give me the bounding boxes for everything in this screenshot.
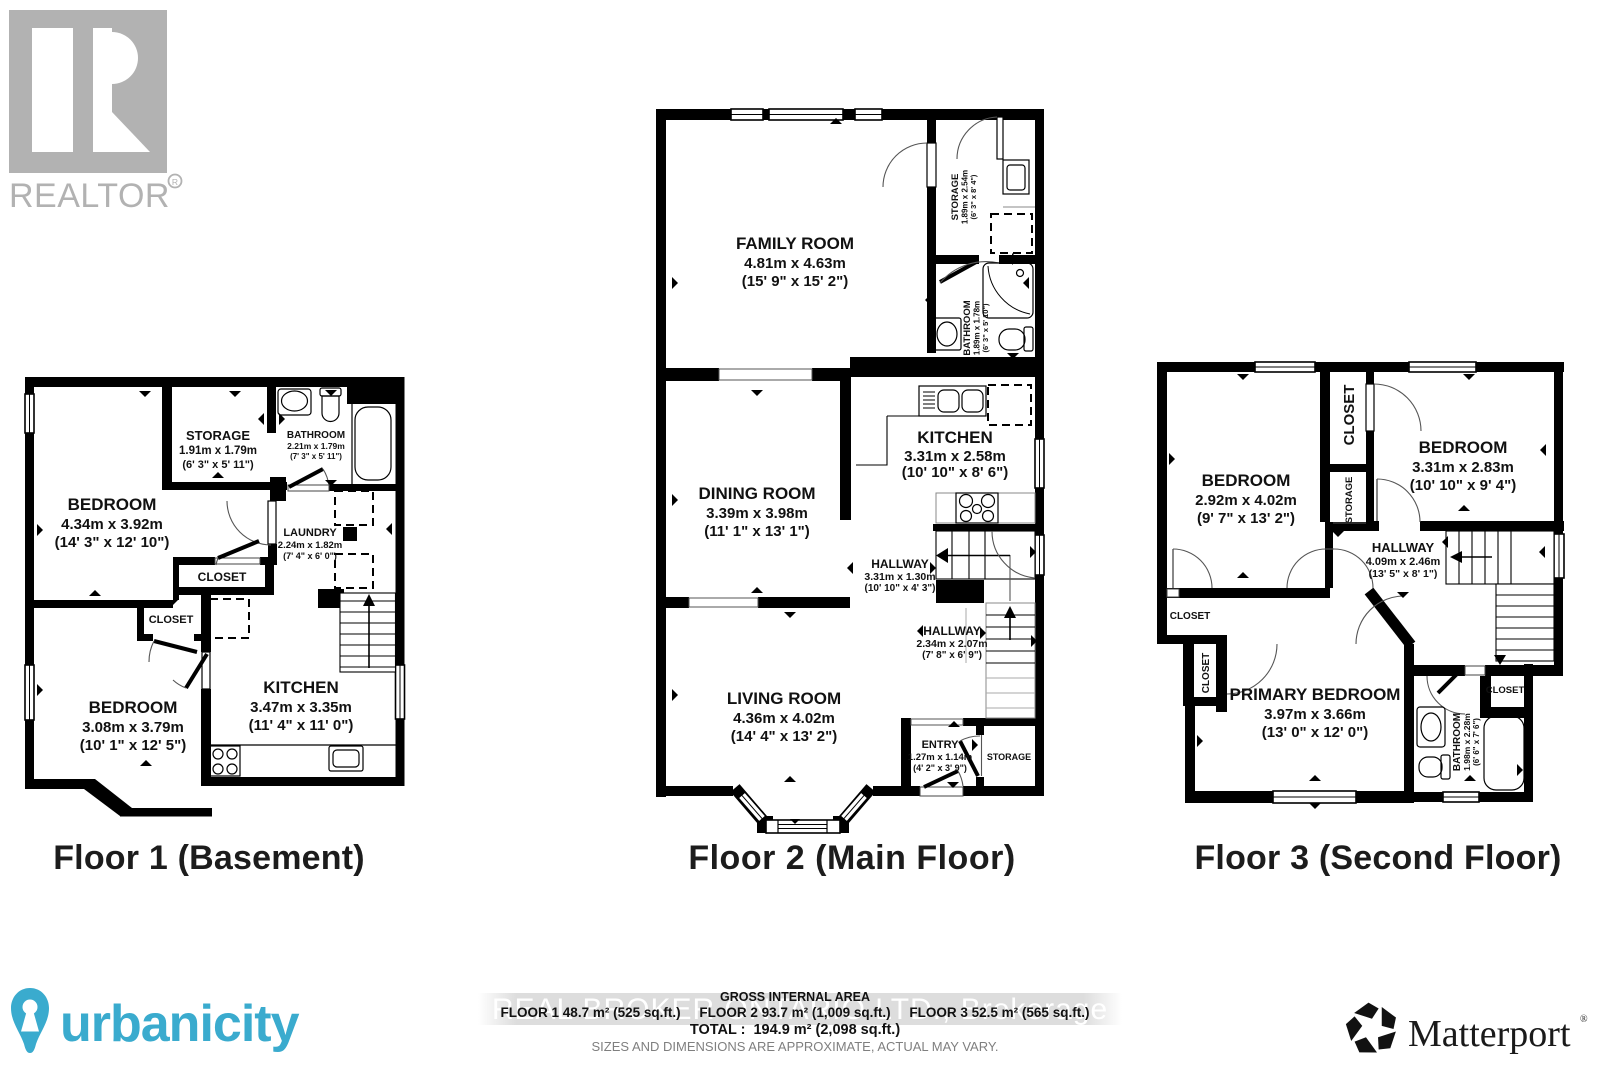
svg-text:CLOSET: CLOSET xyxy=(1170,611,1211,622)
svg-text:®: ® xyxy=(1580,1014,1588,1025)
svg-text:BEDROOM: BEDROOM xyxy=(68,495,157,514)
svg-text:(14' 3" x 12' 10"): (14' 3" x 12' 10") xyxy=(55,534,170,551)
svg-text:BEDROOM: BEDROOM xyxy=(89,698,178,717)
svg-text:STORAGE: STORAGE xyxy=(987,752,1031,762)
svg-text:DINING ROOM: DINING ROOM xyxy=(698,484,815,503)
svg-text:(4' 2" x 3' 9"): (4' 2" x 3' 9") xyxy=(913,763,967,773)
svg-text:(10' 10" x 9' 4"): (10' 10" x 9' 4") xyxy=(1410,477,1516,494)
svg-text:BEDROOM: BEDROOM xyxy=(1202,471,1291,490)
svg-text:(11' 4" x 11' 0"): (11' 4" x 11' 0") xyxy=(249,717,354,734)
svg-text:ENTRY: ENTRY xyxy=(922,739,960,751)
svg-text:1.98m x 2.28m: 1.98m x 2.28m xyxy=(1462,713,1472,771)
svg-text:BATHROOM: BATHROOM xyxy=(962,300,973,355)
svg-text:(6' 3" x 5' 10"): (6' 3" x 5' 10") xyxy=(981,303,990,353)
svg-text:3.08m x 3.79m: 3.08m x 3.79m xyxy=(82,719,184,736)
svg-text:TOTAL : 194.9 m² (2,098 sq.ft: TOTAL : 194.9 m² (2,098 sq.ft.) xyxy=(690,1022,900,1038)
svg-text:LAUNDRY: LAUNDRY xyxy=(283,527,337,539)
svg-text:CLOSET: CLOSET xyxy=(1341,385,1358,446)
svg-text:Floor 2 (Main Floor): Floor 2 (Main Floor) xyxy=(688,839,1015,877)
svg-text:4.81m x 4.63m: 4.81m x 4.63m xyxy=(744,255,846,272)
svg-text:(10' 1" x 12' 5"): (10' 1" x 12' 5") xyxy=(80,737,186,754)
svg-text:(13' 5" x 8' 1"): (13' 5" x 8' 1") xyxy=(1369,568,1438,580)
svg-text:(7' 3" x 5' 11"): (7' 3" x 5' 11") xyxy=(290,452,342,461)
svg-text:HALLWAY: HALLWAY xyxy=(871,557,929,571)
svg-text:REALTOR: REALTOR xyxy=(9,177,170,215)
svg-text:GROSS INTERNAL AREA: GROSS INTERNAL AREA xyxy=(720,990,870,1004)
svg-text:KITCHEN: KITCHEN xyxy=(917,428,993,447)
svg-text:3.31m x 2.83m: 3.31m x 2.83m xyxy=(1412,459,1514,476)
svg-text:FAMILY ROOM: FAMILY ROOM xyxy=(736,234,854,253)
svg-text:STORAGE: STORAGE xyxy=(186,428,250,443)
svg-text:4.34m x 3.92m: 4.34m x 3.92m xyxy=(61,516,163,533)
svg-text:(13' 0" x 12' 0"): (13' 0" x 12' 0") xyxy=(1262,724,1368,741)
svg-text:(6' 3" x 8' 4"): (6' 3" x 8' 4") xyxy=(969,174,978,219)
svg-text:SIZES AND DIMENSIONS ARE APPRO: SIZES AND DIMENSIONS ARE APPROXIMATE, AC… xyxy=(592,1039,999,1054)
svg-text:(6' 6" x 7' 6"): (6' 6" x 7' 6") xyxy=(1472,718,1481,766)
svg-text:(7' 8" x 6' 9"): (7' 8" x 6' 9") xyxy=(922,650,982,661)
svg-text:urbanicity: urbanicity xyxy=(60,995,300,1053)
svg-text:CLOSET: CLOSET xyxy=(1201,653,1212,694)
svg-text:(6' 3" x 5' 11"): (6' 3" x 5' 11") xyxy=(182,459,254,471)
svg-text:LIVING ROOM: LIVING ROOM xyxy=(727,689,841,708)
svg-text:(10' 10" x 4' 3"): (10' 10" x 4' 3") xyxy=(865,583,936,594)
svg-text:3.39m x 3.98m: 3.39m x 3.98m xyxy=(706,505,808,522)
svg-text:(9' 7" x 13' 2"): (9' 7" x 13' 2") xyxy=(1197,510,1295,527)
svg-text:3.47m x 3.35m: 3.47m x 3.35m xyxy=(250,699,352,716)
svg-text:(11' 1" x 13' 1"): (11' 1" x 13' 1") xyxy=(704,523,810,540)
svg-text:CLOSET: CLOSET xyxy=(198,570,247,584)
svg-text:HALLWAY: HALLWAY xyxy=(923,624,981,638)
svg-text:4.36m x 4.02m: 4.36m x 4.02m xyxy=(733,710,835,727)
svg-text:FLOOR 1 48.7 m² (525 sq.ft.): FLOOR 1 48.7 m² (525 sq.ft.) FLOOR 2 93.… xyxy=(501,1005,1090,1020)
svg-text:4.09m x 2.46m: 4.09m x 2.46m xyxy=(1366,556,1441,568)
svg-text:Floor 3 (Second Floor): Floor 3 (Second Floor) xyxy=(1194,839,1561,877)
svg-text:KITCHEN: KITCHEN xyxy=(263,678,339,697)
svg-text:(15' 9" x 15' 2"): (15' 9" x 15' 2") xyxy=(742,273,848,290)
svg-text:3.97m x 3.66m: 3.97m x 3.66m xyxy=(1264,706,1366,723)
svg-text:(14' 4" x 13' 2"): (14' 4" x 13' 2") xyxy=(731,728,837,745)
svg-text:2.21m x 1.79m: 2.21m x 1.79m xyxy=(287,441,345,451)
svg-text:STORAGE: STORAGE xyxy=(950,174,961,221)
svg-text:2.34m x 2.07m: 2.34m x 2.07m xyxy=(916,638,987,650)
svg-text:CLOSET: CLOSET xyxy=(149,614,194,626)
svg-text:(10' 10" x 8' 6"): (10' 10" x 8' 6") xyxy=(902,464,1008,481)
svg-text:1.27m x 1.14m: 1.27m x 1.14m xyxy=(908,752,972,763)
svg-text:3.31m x 1.30m: 3.31m x 1.30m xyxy=(864,571,935,583)
svg-text:(7' 4" x 6' 0"): (7' 4" x 6' 0") xyxy=(283,551,337,561)
svg-text:Matterport: Matterport xyxy=(1408,1013,1571,1055)
svg-text:2.24m x 1.82m: 2.24m x 1.82m xyxy=(278,540,342,551)
svg-text:Floor 1 (Basement): Floor 1 (Basement) xyxy=(53,839,365,877)
svg-text:R: R xyxy=(172,177,178,187)
svg-text:1.91m x 1.79m: 1.91m x 1.79m xyxy=(179,445,257,457)
svg-text:BATHROOM: BATHROOM xyxy=(287,430,345,441)
svg-text:BEDROOM: BEDROOM xyxy=(1419,438,1508,457)
svg-text:CLOSET: CLOSET xyxy=(1486,685,1525,696)
svg-text:STORAGE: STORAGE xyxy=(1344,477,1355,524)
svg-text:PRIMARY BEDROOM: PRIMARY BEDROOM xyxy=(1230,685,1401,704)
svg-text:2.92m x 4.02m: 2.92m x 4.02m xyxy=(1195,492,1297,509)
svg-text:3.31m x 2.58m: 3.31m x 2.58m xyxy=(904,448,1006,465)
svg-text:HALLWAY: HALLWAY xyxy=(1372,540,1435,555)
